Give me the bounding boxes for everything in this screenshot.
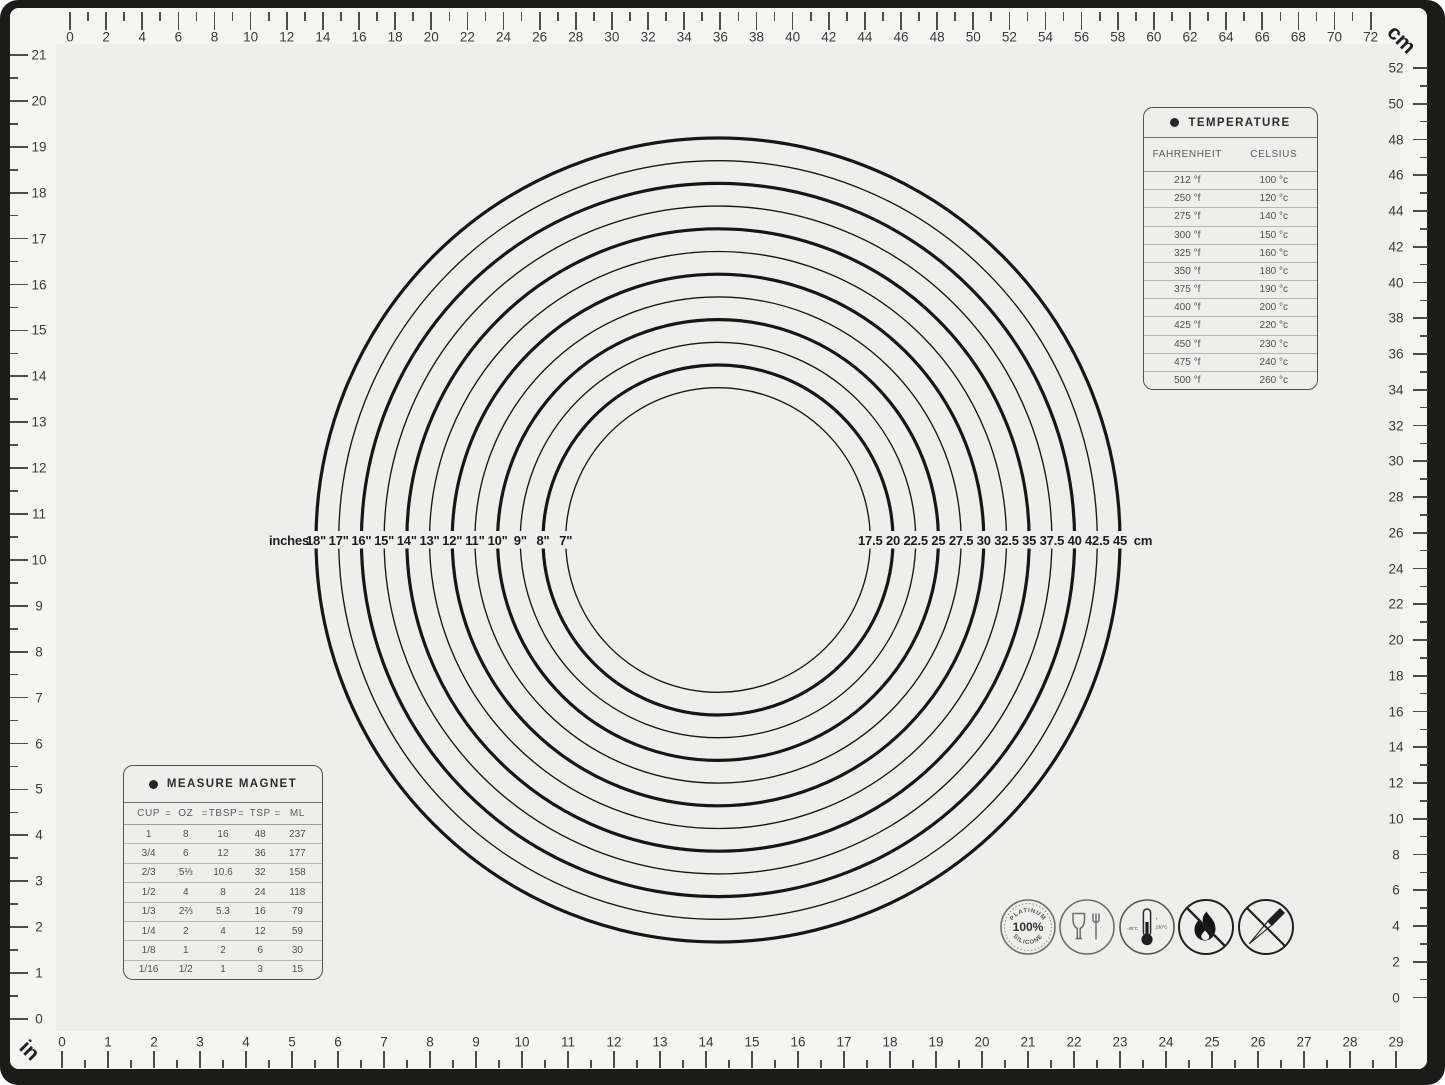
ruler-tick	[1370, 12, 1372, 30]
temperature-table-title-text: TEMPERATURE	[1188, 117, 1290, 129]
ruler-tick	[1298, 12, 1300, 30]
ruler-tick	[912, 1060, 914, 1068]
ruler-tick	[10, 192, 28, 194]
ruler-tick	[452, 1060, 454, 1068]
ruler-tick	[214, 12, 216, 30]
ruler-top-number: 54	[1038, 30, 1053, 45]
temperature-row: 450 °f230 °c	[1144, 335, 1317, 353]
ruler-bottom-number: 8	[426, 1035, 434, 1050]
ruler-tick	[1326, 1060, 1328, 1068]
cell: 1	[167, 945, 204, 956]
ruler-tick	[10, 651, 28, 653]
ruler-right-number: 44	[1388, 204, 1403, 219]
ruler-tick	[1189, 12, 1191, 30]
ring-cm-label: 22.5	[903, 533, 928, 548]
ring-inch-label: 12"	[442, 533, 462, 548]
ruler-tick	[972, 12, 974, 30]
ruler-left-number: 17	[31, 231, 46, 246]
ruler-top-number: 50	[966, 30, 981, 45]
ruler-left-number: 0	[35, 1011, 43, 1026]
ruler-tick	[10, 490, 18, 492]
ruler-tick	[360, 1060, 362, 1068]
ruler-tick	[10, 559, 28, 561]
ruler-right-number: 14	[1388, 740, 1403, 755]
ruler-tick	[1420, 300, 1428, 302]
ruler-tick	[485, 12, 487, 21]
measure-row: 3/461236177	[124, 843, 322, 862]
ruler-top-number: 6	[175, 30, 183, 45]
ruler-tick	[1352, 12, 1354, 21]
ring-inch-label: 11"	[465, 533, 484, 548]
ruler-tick	[1234, 1060, 1236, 1068]
ruler-tick	[232, 12, 234, 21]
ruler-tick	[521, 12, 523, 21]
ruler-right-number: 32	[1388, 418, 1403, 433]
ruler-bottom-number: 24	[1158, 1035, 1173, 1050]
ruler-tick	[544, 1060, 546, 1068]
ring-cm-label: 30	[977, 533, 991, 548]
cell: 118	[279, 887, 316, 898]
ruler-bottom-number: 27	[1296, 1035, 1311, 1050]
platinum-silicone-icon: PLATINUM 100% SILICONE	[998, 897, 1058, 957]
ruler-left-number: 7	[35, 690, 43, 705]
ruler-tick	[1027, 12, 1029, 21]
ruler-tick	[199, 1051, 201, 1068]
ruler-top-number: 12	[279, 30, 294, 45]
ruler-tick	[10, 857, 18, 859]
ruler-tick	[665, 12, 667, 21]
ruler-tick	[846, 12, 848, 21]
ruler-tick	[1413, 925, 1428, 927]
cell: 240 °c	[1231, 357, 1318, 368]
measure-table-title-text: MEASURE MAGNET	[167, 778, 297, 790]
ruler-tick	[1303, 1051, 1305, 1068]
ruler-tick	[1372, 1060, 1374, 1068]
cell: 79	[279, 906, 316, 917]
ruler-tick	[10, 926, 28, 928]
ruler-tick	[1413, 639, 1428, 641]
ruler-tick	[705, 1051, 707, 1068]
ring-cm-label: 25	[931, 533, 945, 548]
ring-inch-label: 10"	[488, 533, 508, 548]
ruler-tick	[430, 12, 432, 30]
ruler-tick	[105, 12, 107, 30]
ruler-tick	[1280, 12, 1282, 21]
ruler-bottom-number: 28	[1342, 1035, 1357, 1050]
ruler-tick	[1420, 371, 1428, 373]
ruler-tick	[567, 1051, 569, 1068]
temperature-row: 212 °f100 °c	[1144, 172, 1317, 189]
ruler-bottom-number: 20	[974, 1035, 989, 1050]
cell: 59	[279, 926, 316, 937]
ruler-tick	[178, 12, 180, 30]
temperature-row: 325 °f160 °c	[1144, 244, 1317, 262]
ruler-tick	[10, 743, 28, 745]
cell: 1	[204, 964, 241, 975]
ruler-tick	[107, 1051, 109, 1068]
ruler-tick	[10, 880, 28, 882]
ruler-tick	[1420, 443, 1428, 445]
ruler-left-number: 10	[31, 552, 46, 567]
ruler-tick	[1413, 711, 1428, 713]
ruler-tick	[10, 444, 18, 446]
cell: 250 °f	[1144, 193, 1231, 204]
cell: 2⅔	[167, 906, 204, 917]
ruler-tick	[647, 12, 649, 30]
ruler-tick	[774, 12, 776, 21]
ruler-tick	[797, 1051, 799, 1068]
ruler-tick	[1420, 872, 1428, 874]
cell: OZ	[167, 808, 204, 819]
ruler-tick	[1420, 764, 1428, 766]
ruler-bottom-number: 10	[514, 1035, 529, 1050]
ruler-tick	[10, 995, 18, 997]
ruler-bottom-number: 26	[1250, 1035, 1265, 1050]
measure-row: 1/24824118	[124, 882, 322, 901]
ruler-tick	[728, 1060, 730, 1068]
temperature-row: 250 °f120 °c	[1144, 189, 1317, 207]
ruler-tick	[1413, 353, 1428, 355]
cell: CUP	[130, 808, 167, 819]
ruler-tick	[1211, 1051, 1213, 1068]
ruler-right-number: 16	[1388, 704, 1403, 719]
ruler-tick	[10, 146, 28, 148]
ruler-tick	[900, 12, 902, 30]
ruler-tick	[1261, 12, 1263, 30]
ruler-top-number: 48	[930, 30, 945, 45]
ruler-tick	[828, 12, 830, 30]
ruler-tick	[10, 834, 28, 836]
cell: 500 °f	[1144, 375, 1231, 386]
ruler-top-number: 56	[1074, 30, 1089, 45]
ruler-top-number: 66	[1255, 30, 1270, 45]
ruler-tick	[10, 1018, 28, 1020]
cell: 177	[279, 848, 316, 859]
cell: 140 °c	[1231, 211, 1318, 222]
ruler-tick	[130, 1060, 132, 1068]
ruler-tick	[1349, 1051, 1351, 1068]
ruler-tick	[719, 12, 721, 30]
ruler-tick	[1420, 907, 1428, 909]
ring-cm-label: 20	[886, 533, 900, 548]
ruler-tick	[683, 12, 685, 30]
ruler-bottom-number: 17	[836, 1035, 851, 1050]
ruler-top-number: 0	[66, 30, 74, 45]
ruler-tick	[1142, 1060, 1144, 1068]
ring-cm-label: 37.5	[1040, 533, 1065, 548]
temperature-columns-header: FAHRENHEITCELSIUS	[1144, 138, 1317, 172]
ruler-left-number: 3	[35, 874, 43, 889]
cell: 212 °f	[1144, 175, 1231, 186]
ruler-tick	[10, 330, 28, 332]
ring-cm-label: 27.5	[949, 533, 974, 548]
ruler-tick	[1420, 979, 1428, 981]
ruler-tick	[1420, 729, 1428, 731]
fork-glyph	[1093, 914, 1099, 940]
cell: 450 °f	[1144, 339, 1231, 350]
ruler-top-number: 40	[785, 30, 800, 45]
ruler-tick	[1420, 621, 1428, 623]
cell: 48	[242, 829, 279, 840]
ruler-tick	[1420, 228, 1428, 230]
cell: 375 °f	[1144, 284, 1231, 295]
ruler-top-number: 70	[1327, 30, 1342, 45]
ruler-tick	[1004, 1060, 1006, 1068]
ruler-tick	[10, 215, 18, 217]
ruler-tick	[611, 12, 613, 30]
ruler-bottom-number: 9	[472, 1035, 480, 1050]
ruler-top-number: 52	[1002, 30, 1017, 45]
ruler-tick	[10, 261, 18, 263]
ruler-tick	[1413, 67, 1428, 69]
ruler-tick	[10, 169, 18, 171]
ruler-tick	[383, 1051, 385, 1068]
ruler-tick	[1257, 1051, 1259, 1068]
measure-table-bullet-icon	[149, 780, 158, 789]
ruler-tick	[1420, 550, 1428, 552]
ruler-tick	[498, 1060, 500, 1068]
ruler-tick	[10, 421, 28, 423]
ruler-tick	[1045, 12, 1047, 30]
ruler-tick	[250, 12, 252, 30]
cell: 12	[242, 926, 279, 937]
cell: 8	[204, 887, 241, 898]
ruler-tick	[123, 12, 125, 21]
ruler-tick	[1420, 121, 1428, 123]
ruler-right-number: 46	[1388, 168, 1403, 183]
ruler-tick	[889, 1051, 891, 1068]
seal-center-text: 100%	[1013, 920, 1044, 934]
ruler-tick	[1009, 12, 1011, 30]
no-open-flame-icon	[1176, 897, 1236, 957]
cell: 160 °c	[1231, 248, 1318, 259]
measure-row: 1/32⅔5.31679	[124, 902, 322, 921]
ruler-tick	[1413, 460, 1428, 462]
ring-inch-label: 8"	[537, 533, 550, 548]
ruler-tick	[475, 1051, 477, 1068]
ruler-bottom-number: 7	[380, 1035, 388, 1050]
ruler-right-number: 38	[1388, 311, 1403, 326]
equals-separator: =	[238, 808, 244, 819]
ruler-tick	[153, 1051, 155, 1068]
ruler-tick	[1413, 889, 1428, 891]
knife-handle	[1268, 909, 1284, 925]
ruler-tick	[1420, 943, 1428, 945]
ruler-tick	[10, 697, 28, 699]
rings-unit-label-inches: inches	[269, 533, 309, 548]
ruler-bottom-number: 21	[1020, 1035, 1035, 1050]
cell: 4	[167, 887, 204, 898]
ring-cm-label: 17.5	[858, 533, 883, 548]
ruler-tick	[1117, 12, 1119, 30]
ruler-tick	[1420, 478, 1428, 480]
temperature-table: TEMPERATUREFAHRENHEITCELSIUS212 °f100 °c…	[1143, 107, 1318, 390]
ruler-tick	[1063, 12, 1065, 21]
cell: TBSP	[204, 808, 241, 819]
ruler-bottom-number: 3	[196, 1035, 204, 1050]
ruler-tick	[1420, 407, 1428, 409]
ruler-tick	[394, 12, 396, 30]
ruler-tick	[864, 12, 866, 30]
ruler-tick	[10, 375, 28, 377]
ruler-bottom-number: 4	[242, 1035, 250, 1050]
ruler-tick	[10, 628, 18, 630]
ruler-tick	[84, 1060, 86, 1068]
ruler-top-number: 8	[211, 30, 219, 45]
cell: 15	[279, 964, 316, 975]
ruler-tick	[792, 12, 794, 30]
ruler-bottom-number: 13	[652, 1035, 667, 1050]
ruler-bottom-number: 18	[882, 1035, 897, 1050]
ruler-top-number: 38	[749, 30, 764, 45]
ruler-tick	[1413, 317, 1428, 319]
ruler-tick	[1420, 514, 1428, 516]
cell: 275 °f	[1144, 211, 1231, 222]
measure-row: 1/4241259	[124, 921, 322, 940]
cell: 150 °c	[1231, 230, 1318, 241]
ruler-tick	[659, 1051, 661, 1068]
ruler-top-number: 20	[424, 30, 439, 45]
ring-inch-label: 17"	[329, 533, 349, 548]
ruler-top-number: 24	[496, 30, 511, 45]
ruler-tick	[467, 12, 469, 30]
ruler-right-number: 20	[1388, 633, 1403, 648]
ruler-right-number: 10	[1388, 811, 1403, 826]
ruler-top-number: 36	[713, 30, 728, 45]
ruler-tick	[981, 1051, 983, 1068]
measure-row: 181648237	[124, 825, 322, 843]
temp-max-label: 230°C	[1156, 925, 1168, 930]
ruler-tick	[1413, 174, 1428, 176]
ruler-bottom-number: 6	[334, 1035, 342, 1050]
ruler-right-number: 34	[1388, 382, 1403, 397]
ruler-top-number: 46	[893, 30, 908, 45]
equals-separator: =	[202, 808, 208, 819]
ruler-tick	[10, 766, 18, 768]
cell: 300 °f	[1144, 230, 1231, 241]
temperature-range-icon: -40°C + 230°C	[1117, 897, 1177, 957]
ruler-bottom-number: 15	[744, 1035, 759, 1050]
cell: 10.6	[204, 867, 241, 878]
ruler-left-number: 2	[35, 920, 43, 935]
cell: 3	[242, 964, 279, 975]
ruler-left-number: 21	[31, 48, 46, 63]
ruler-tick	[10, 77, 18, 79]
cell: 1	[130, 829, 167, 840]
ruler-tick	[557, 12, 559, 21]
wine-glass-glyph	[1073, 914, 1085, 939]
ruler-tick	[636, 1060, 638, 1068]
ring-cm-label: 40	[1068, 533, 1082, 548]
cell: 36	[242, 848, 279, 859]
cell: 475 °f	[1144, 357, 1231, 368]
ruler-tick	[1413, 246, 1428, 248]
ruler-right-number: 24	[1388, 561, 1403, 576]
ruler-tick	[322, 12, 324, 30]
cell: 30	[279, 945, 316, 956]
cell: 260 °c	[1231, 375, 1318, 386]
temperature-table-title: TEMPERATURE	[1144, 108, 1317, 138]
ruler-tick	[412, 12, 414, 21]
cell: TSP	[242, 808, 279, 819]
ruler-tick	[291, 1051, 293, 1068]
ruler-tick	[629, 12, 631, 21]
knife-blade	[1250, 921, 1272, 943]
ruler-tick	[268, 12, 270, 21]
ruler-bottom-number: 19	[928, 1035, 943, 1050]
ruler-left-number: 18	[31, 185, 46, 200]
ruler-tick	[10, 513, 28, 515]
cell: 5.3	[204, 906, 241, 917]
cell: 425 °f	[1144, 320, 1231, 331]
temperature-row: 500 °f260 °c	[1144, 371, 1317, 389]
ruler-tick	[1243, 12, 1245, 21]
ruler-top-number: 44	[857, 30, 872, 45]
ring-inch-label: 15"	[374, 533, 394, 548]
ruler-right-number: 4	[1392, 919, 1400, 934]
ruler-tick	[449, 12, 451, 21]
measure-columns-header: CUPOZTBSPTSPML====	[124, 803, 322, 825]
ruler-tick	[1420, 264, 1428, 266]
cell: 4	[204, 926, 241, 937]
ruler-top-number: 14	[315, 30, 330, 45]
temperature-row: 475 °f240 °c	[1144, 353, 1317, 371]
equals-separator: =	[275, 808, 281, 819]
ruler-top-number: 10	[243, 30, 258, 45]
ruler-tick	[222, 1060, 224, 1068]
cell: 325 °f	[1144, 248, 1231, 259]
pastry-mat-image: inches18"4517"42.516"4015"37.514"3513"32…	[0, 0, 1445, 1085]
ruler-left-number: 19	[31, 139, 46, 154]
ruler-tick	[1135, 12, 1137, 21]
ruler-right-number: 2	[1392, 954, 1400, 969]
ruler-bottom-number: 16	[790, 1035, 805, 1050]
ruler-tick	[1188, 1060, 1190, 1068]
ruler-tick	[1153, 12, 1155, 30]
cell: 100 °c	[1231, 175, 1318, 186]
cell: 5⅓	[167, 867, 204, 878]
ring-cm-label: 45	[1113, 533, 1127, 548]
ring-inch-label: 14"	[397, 533, 417, 548]
ruler-right-number: 28	[1388, 490, 1403, 505]
cell: 32	[242, 867, 279, 878]
temperature-table-bullet-icon	[1170, 118, 1179, 127]
cell: 230 °c	[1231, 339, 1318, 350]
cell: 1/3	[130, 906, 167, 917]
cell: CELSIUS	[1231, 149, 1318, 160]
cell: 2/3	[130, 867, 167, 878]
ruler-left-number: 12	[31, 461, 46, 476]
ruler-right-number: 36	[1388, 347, 1403, 362]
temperature-row: 425 °f220 °c	[1144, 316, 1317, 334]
ruler-bottom-number: 14	[698, 1035, 713, 1050]
thermometer-bulb	[1141, 934, 1152, 945]
ruler-right-number: 30	[1388, 454, 1403, 469]
ruler-tick	[1395, 1051, 1397, 1068]
ruler-top-number: 72	[1363, 30, 1378, 45]
ruler-bottom-number: 1	[104, 1035, 112, 1050]
ruler-tick	[1413, 997, 1428, 999]
ruler-right-number: 8	[1392, 847, 1400, 862]
ruler-tick	[176, 1060, 178, 1068]
ruler-left-number: 14	[31, 369, 46, 384]
ruler-tick	[406, 1060, 408, 1068]
ruler-tick	[314, 1060, 316, 1068]
ruler-tick	[590, 1060, 592, 1068]
cell: 1/16	[130, 964, 167, 975]
ruler-top-number: 60	[1146, 30, 1161, 45]
ruler-tick	[286, 12, 288, 30]
